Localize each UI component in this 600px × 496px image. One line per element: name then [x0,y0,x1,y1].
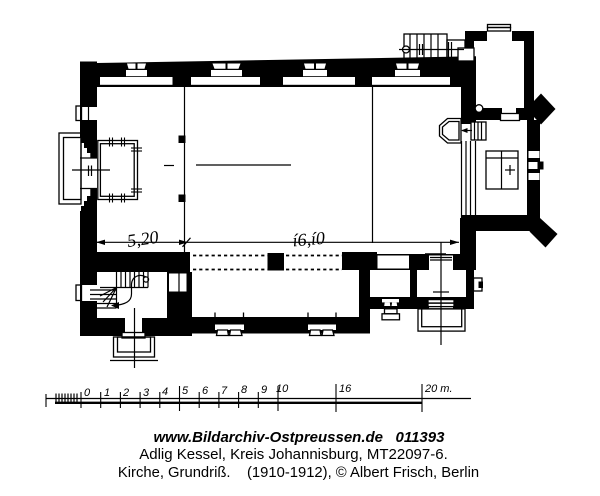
svg-text:9: 9 [261,384,267,396]
svg-text:4: 4 [162,386,168,398]
svg-text:6: 6 [202,385,209,397]
svg-text:20 m.: 20 m. [424,383,453,395]
svg-text:2: 2 [122,387,129,399]
svg-text:7: 7 [221,385,228,397]
svg-text:www.Bildarchiv-Ostpreussen.de: www.Bildarchiv-Ostpreussen.de 011393 [154,429,446,446]
svg-text:5: 5 [182,385,189,397]
svg-text:3: 3 [143,387,150,399]
svg-text:10: 10 [276,383,289,395]
svg-text:16: 16 [339,383,352,395]
svg-text:8: 8 [241,384,248,396]
svg-text:Kirche, Grundriß. (1910-191: Kirche, Grundriß. (1910-1912), © Albert … [118,465,479,481]
svg-text:Adlig Kessel, Kreis Johannisbu: Adlig Kessel, Kreis Johannisburg, MT2209… [139,446,448,463]
svg-text:í6,í0: í6,í0 [292,228,326,251]
svg-text:0: 0 [84,387,91,399]
svg-text:1: 1 [104,387,110,399]
svg-text:5,20: 5,20 [126,227,160,251]
